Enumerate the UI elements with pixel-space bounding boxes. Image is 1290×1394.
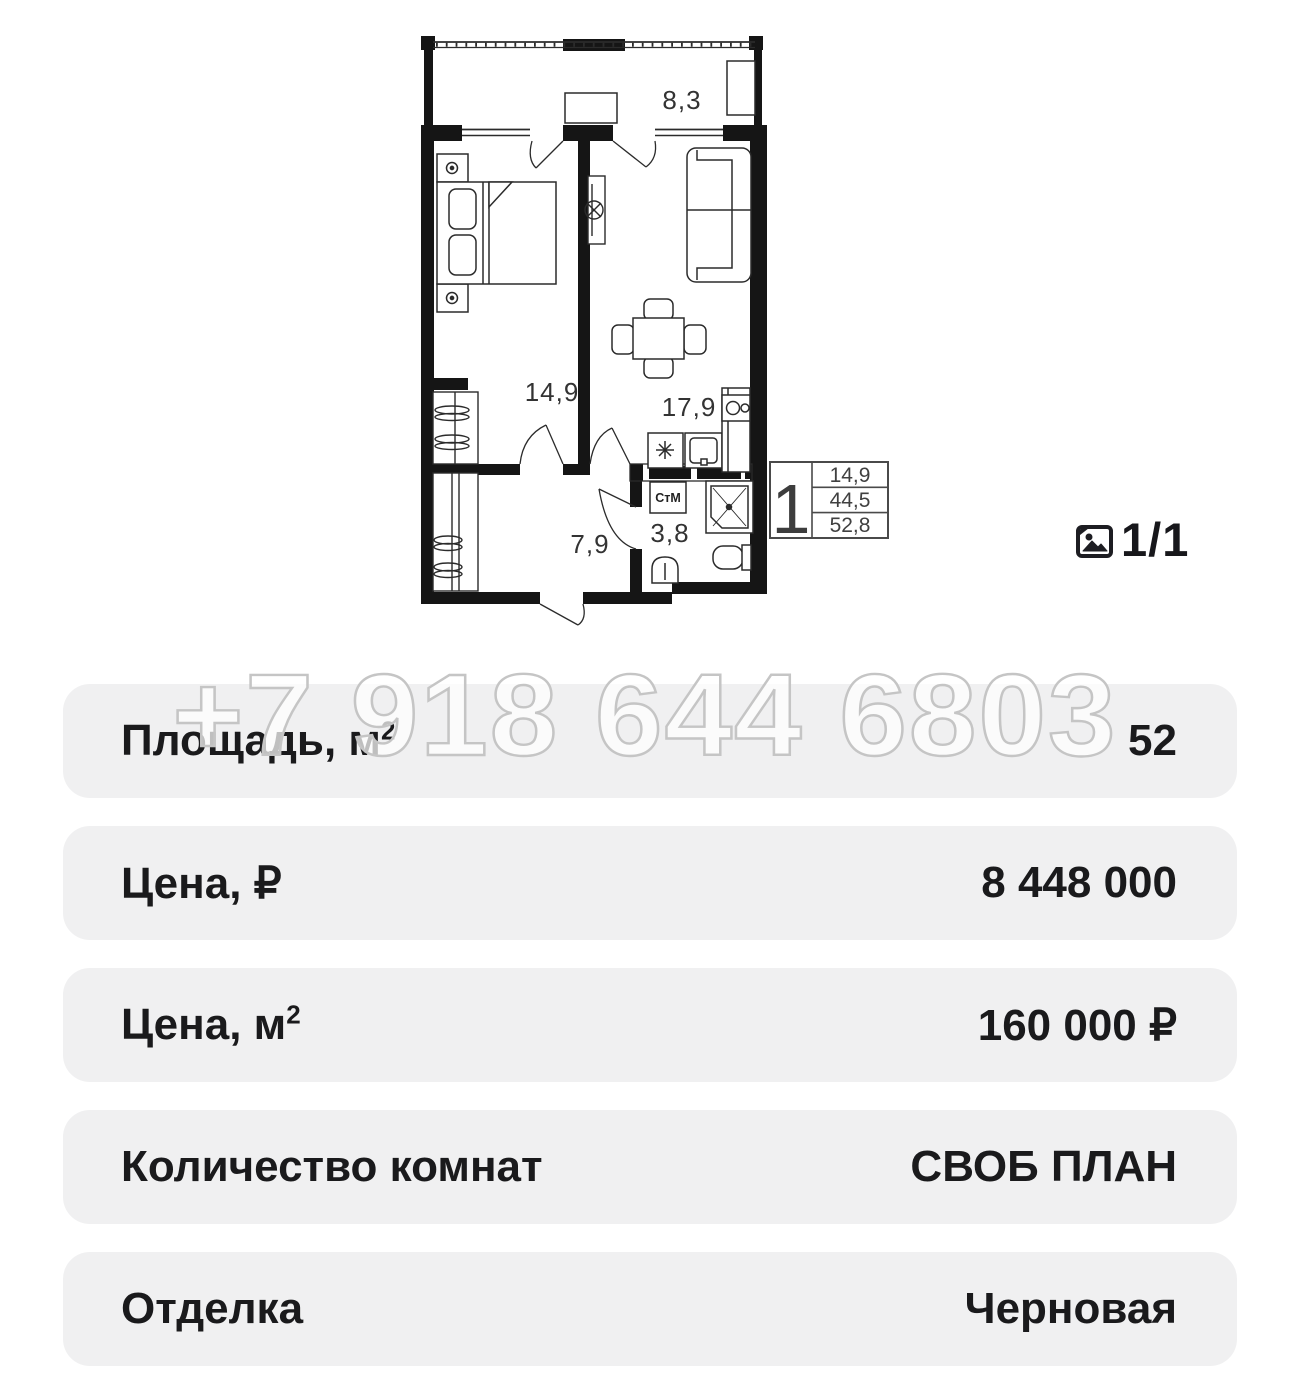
legend-total-area: 52,8 [830, 514, 871, 537]
row-value: 8 448 000 [981, 858, 1177, 908]
dining-set [612, 299, 706, 378]
row-value: 52 [1128, 716, 1177, 766]
details-row-price: Цена, ₽ 8 448 000 [63, 826, 1237, 940]
legend-rooms-count: 1 [772, 470, 811, 548]
row-value: 160 000 ₽ [978, 1000, 1177, 1051]
row-label: Отделка [121, 1284, 303, 1334]
details-row-finishing: Отделка Черновая [63, 1252, 1237, 1366]
legend-area-without-balcony: 44,5 [830, 489, 871, 512]
row-value: СВОБ ПЛАН [910, 1142, 1177, 1192]
room-label-hallway: 7,9 [570, 529, 609, 559]
row-value: Черновая [965, 1284, 1177, 1334]
photo-counter[interactable]: 1/1 [1078, 513, 1189, 566]
room-label-balcony: 8,3 [662, 85, 701, 115]
floor-plan-image: 8,3 14,9 17,9 7,9 3,8 СтМ 1 14,9 44,5 52… [0, 0, 1290, 660]
photo-counter-text: 1/1 [1121, 513, 1189, 566]
plan-legend: 1 14,9 44,5 52,8 [770, 462, 888, 548]
row-label: Цена, ₽ [121, 858, 282, 909]
washer-label: СтМ [655, 491, 681, 505]
details-row-area: Площадь, м2 52 [63, 684, 1237, 798]
room-label-bedroom: 14,9 [525, 377, 580, 407]
room-label-bathroom: 3,8 [650, 518, 689, 548]
row-label: Количество комнат [121, 1142, 543, 1192]
tv-unit [585, 176, 605, 244]
row-label: Площадь, м2 [121, 716, 395, 766]
details-row-price-per-m2: Цена, м2 160 000 ₽ [63, 968, 1237, 1082]
bed [437, 154, 556, 312]
details-list: Площадь, м2 52 Цена, ₽ 8 448 000 Цена, м… [63, 684, 1237, 1394]
image-icon [1078, 527, 1111, 556]
details-row-rooms: Количество комнат СВОБ ПЛАН [63, 1110, 1237, 1224]
listing-page: 8,3 14,9 17,9 7,9 3,8 СтМ 1 14,9 44,5 52… [0, 0, 1290, 1372]
balcony-furniture [565, 61, 755, 123]
superscript: 2 [381, 715, 395, 745]
legend-living-area: 14,9 [830, 464, 871, 487]
room-label-kitchen-living: 17,9 [662, 392, 717, 422]
sofa [687, 148, 751, 282]
superscript: 2 [286, 999, 300, 1029]
wardrobes [433, 392, 478, 591]
row-label: Цена, м2 [121, 1000, 301, 1050]
